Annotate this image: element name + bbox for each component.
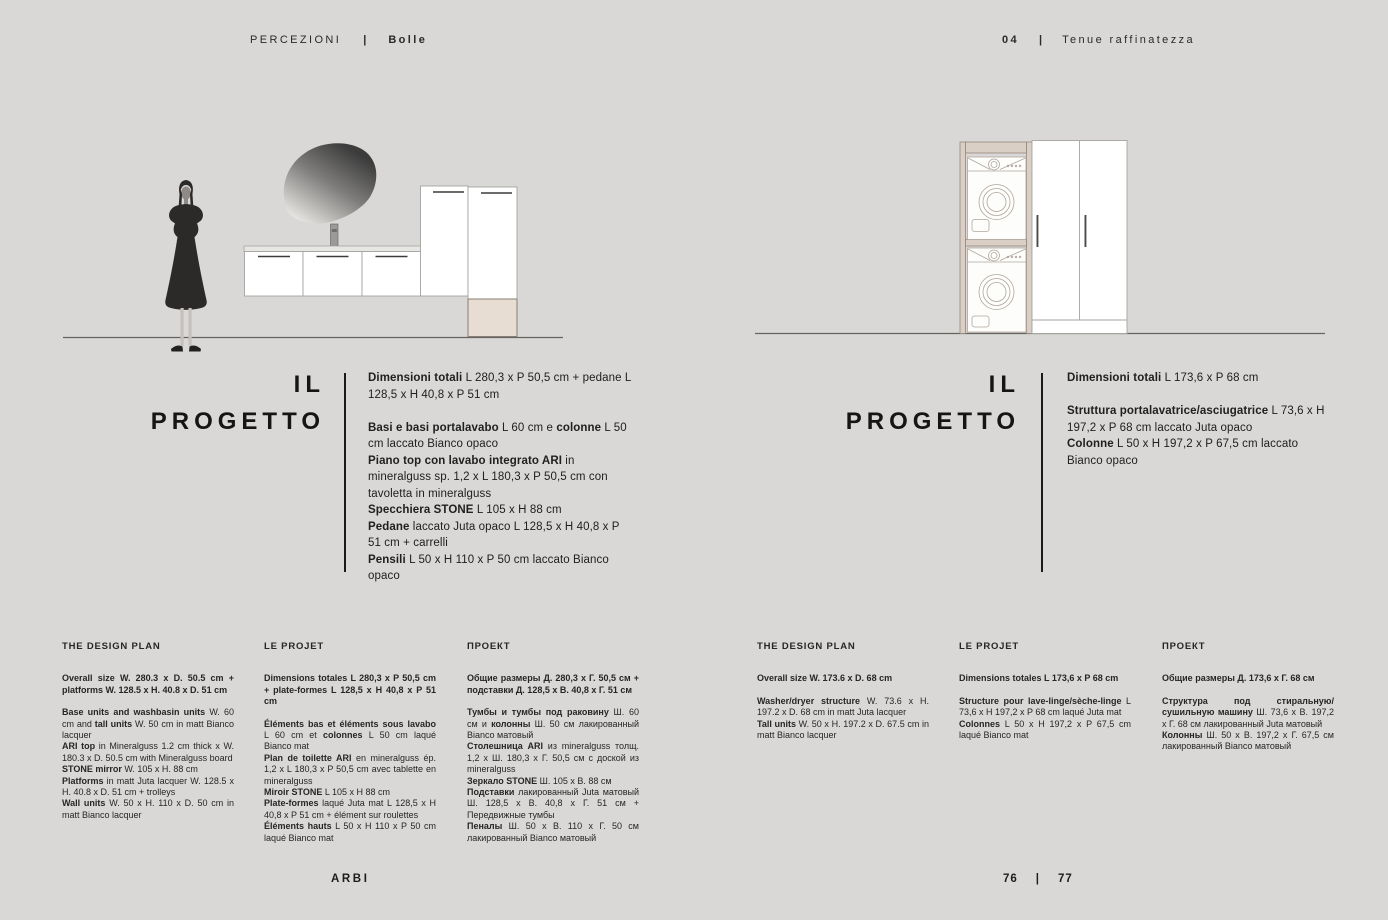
juta-platform <box>468 299 517 337</box>
column-design-plan-right: THE DESIGN PLAN Overall size W. 173.6 x … <box>757 641 929 741</box>
base-unit-door <box>303 252 362 297</box>
column-le-projet-right: LE PROJET Dimensions totales L 173,6 x P… <box>959 641 1131 741</box>
header-left: PERCEZIONI | Bolle <box>250 34 427 46</box>
column-paragraph: Тумбы и тумбы под раковину Ш. 60 см и ко… <box>467 707 639 741</box>
specs-right: Dimensioni totali L 173,6 x P 68 cm Stru… <box>1067 370 1331 469</box>
model-name: Bolle <box>388 34 427 46</box>
column-paragraph: Éléments bas et éléments sous lavabo L 6… <box>264 719 436 753</box>
base-units <box>245 252 421 297</box>
spec-paragraph: Colonne L 50 x H 197,2 x P 67,5 cm lacca… <box>1067 436 1331 469</box>
column-paragraph: Structure pour lave-linge/sèche-linge L … <box>959 696 1131 719</box>
spec-paragraph: Pedane laccato Juta opaco L 128,5 x H 40… <box>368 519 632 552</box>
column-paragraph: Colonnes L 50 x H 197,2 x P 67,5 cm laqu… <box>959 719 1131 742</box>
column-paragraph: Washer/dryer structure W. 73.6 x H. 197.… <box>757 696 929 719</box>
header-divider: | <box>1039 34 1042 46</box>
column-paragraph: Зеркало STONE Ш. 105 х В. 88 см <box>467 776 639 787</box>
column-paragraph: Miroir STONE L 105 x H 88 cm <box>264 787 436 798</box>
column-proekt-right: ПРОЕКТ Общие размеры Д. 173,6 х Г. 68 см… <box>1162 641 1334 753</box>
column-paragraph: Plate-formes laqué Juta mat L 128,5 x H … <box>264 798 436 821</box>
specs-left: Dimensioni totali L 280,3 x P 50,5 cm + … <box>368 370 632 585</box>
column-paragraph: Подставки лакированный Juta матовый Ш. 1… <box>467 787 639 821</box>
page-number-right: 77 <box>1058 873 1073 885</box>
heading-line: IL <box>95 366 325 403</box>
column-paragraph: Base units and washbasin units W. 60 cm … <box>62 707 234 741</box>
column-paragraph: Éléments hauts L 50 x H 110 x P 50 cm la… <box>264 821 436 844</box>
tall-unit-door <box>468 187 517 299</box>
door-handle <box>1085 215 1087 247</box>
page-numbers: 76 | 77 <box>1003 873 1073 885</box>
vertical-divider <box>344 373 346 572</box>
project-heading-left: IL PROGETTO <box>95 366 325 440</box>
heading-line: IL <box>790 366 1020 403</box>
column-le-projet-left: LE PROJET Dimensions totales L 280,3 x P… <box>264 641 436 844</box>
door-handle <box>1037 215 1039 247</box>
scale-figure <box>165 180 207 352</box>
column-paragraph: Столешница ARI из mineralguss толщ. 1,2 … <box>467 741 639 775</box>
column-paragraph: STONE mirror W. 105 x H. 88 cm <box>62 764 234 775</box>
base-unit-door <box>245 252 304 297</box>
brand-name: ARBI <box>331 873 370 885</box>
column-heading: LE PROJET <box>959 641 1131 652</box>
faucet <box>331 224 339 247</box>
column-heading: LE PROJET <box>264 641 436 652</box>
page-number-left: 76 <box>1003 873 1018 885</box>
washing-machine-lower <box>968 248 1027 332</box>
column-heading: ПРОЕКТ <box>467 641 639 652</box>
column-paragraph: ARI top in Mineralguss 1.2 cm thick x W.… <box>62 741 234 764</box>
laundry-elevation-drawing <box>750 120 1340 350</box>
column-paragraph: Platforms in matt Juta lacquer W. 128.5 … <box>62 776 234 799</box>
column-intro: Общие размеры Д. 280,3 х Г. 50,5 см + по… <box>467 673 639 696</box>
stone-mirror <box>284 143 377 223</box>
spec-paragraph: Specchiera STONE L 105 x H 88 cm <box>368 502 632 519</box>
catalog-spread: PERCEZIONI | Bolle 04 | Tenue raffinatez… <box>0 0 1388 920</box>
column-heading: THE DESIGN PLAN <box>757 641 929 652</box>
collection-name: PERCEZIONI <box>250 34 341 46</box>
column-intro: Общие размеры Д. 173,6 х Г. 68 см <box>1162 673 1334 684</box>
spec-paragraph: Piano top con lavabo integrato ARI in mi… <box>368 453 632 503</box>
vanity-elevation-drawing <box>60 130 640 360</box>
vertical-divider <box>1041 373 1043 572</box>
column-paragraph: Plan de toilette ARI en mineralguss ép. … <box>264 753 436 787</box>
chapter-number: 04 <box>1002 34 1019 46</box>
washbasin-top <box>244 246 421 252</box>
column-paragraph: Структура под стиральную/сушильную машин… <box>1162 696 1334 730</box>
column-proekt-left: ПРОЕКТ Общие размеры Д. 280,3 х Г. 50,5 … <box>467 641 639 844</box>
spec-paragraph: Basi e basi portalavabo L 60 cm e colonn… <box>368 420 632 453</box>
column-heading: THE DESIGN PLAN <box>62 641 234 652</box>
tall-units <box>1032 141 1127 334</box>
spec-paragraph: Dimensioni totali L 280,3 x P 50,5 cm + … <box>368 370 632 403</box>
header-right: 04 | Tenue raffinatezza <box>1002 34 1195 46</box>
column-intro: Overall size W. 173.6 x D. 68 cm <box>757 673 929 684</box>
heading-line: PROGETTO <box>95 403 325 440</box>
tall-units <box>421 186 518 299</box>
chapter-title: Tenue raffinatezza <box>1062 34 1195 46</box>
spec-paragraph: Struttura portalavatrice/asciugatrice L … <box>1067 403 1331 436</box>
column-intro: Dimensions totales L 173,6 x P 68 cm <box>959 673 1131 684</box>
column-intro: Overall size W. 280.3 x D. 50.5 cm + pla… <box>62 673 234 696</box>
spec-paragraph: Dimensioni totali L 173,6 x P 68 cm <box>1067 370 1331 387</box>
header-divider: | <box>363 34 366 46</box>
washing-machine-upper <box>968 157 1027 240</box>
heading-line: PROGETTO <box>790 403 1020 440</box>
column-paragraph: Tall units W. 50 x H. 197.2 x D. 67.5 cm… <box>757 719 929 742</box>
page-divider: | <box>1036 873 1040 885</box>
column-paragraph: Пеналы Ш. 50 х В. 110 х Г. 50 см лакиров… <box>467 821 639 844</box>
column-paragraph: Wall units W. 50 x H. 110 x D. 50 cm in … <box>62 798 234 821</box>
spec-paragraph: Pensili L 50 x H 110 x P 50 cm laccato B… <box>368 552 632 585</box>
project-heading-right: IL PROGETTO <box>790 366 1020 440</box>
column-design-plan-left: THE DESIGN PLAN Overall size W. 280.3 x … <box>62 641 234 821</box>
tall-unit-door <box>421 186 469 296</box>
column-paragraph: Колонны Ш. 50 х В. 197,2 х Г. 67,5 см ла… <box>1162 730 1334 753</box>
column-heading: ПРОЕКТ <box>1162 641 1334 652</box>
base-unit-door <box>362 252 421 297</box>
column-intro: Dimensions totales L 280,3 x P 50,5 cm +… <box>264 673 436 707</box>
